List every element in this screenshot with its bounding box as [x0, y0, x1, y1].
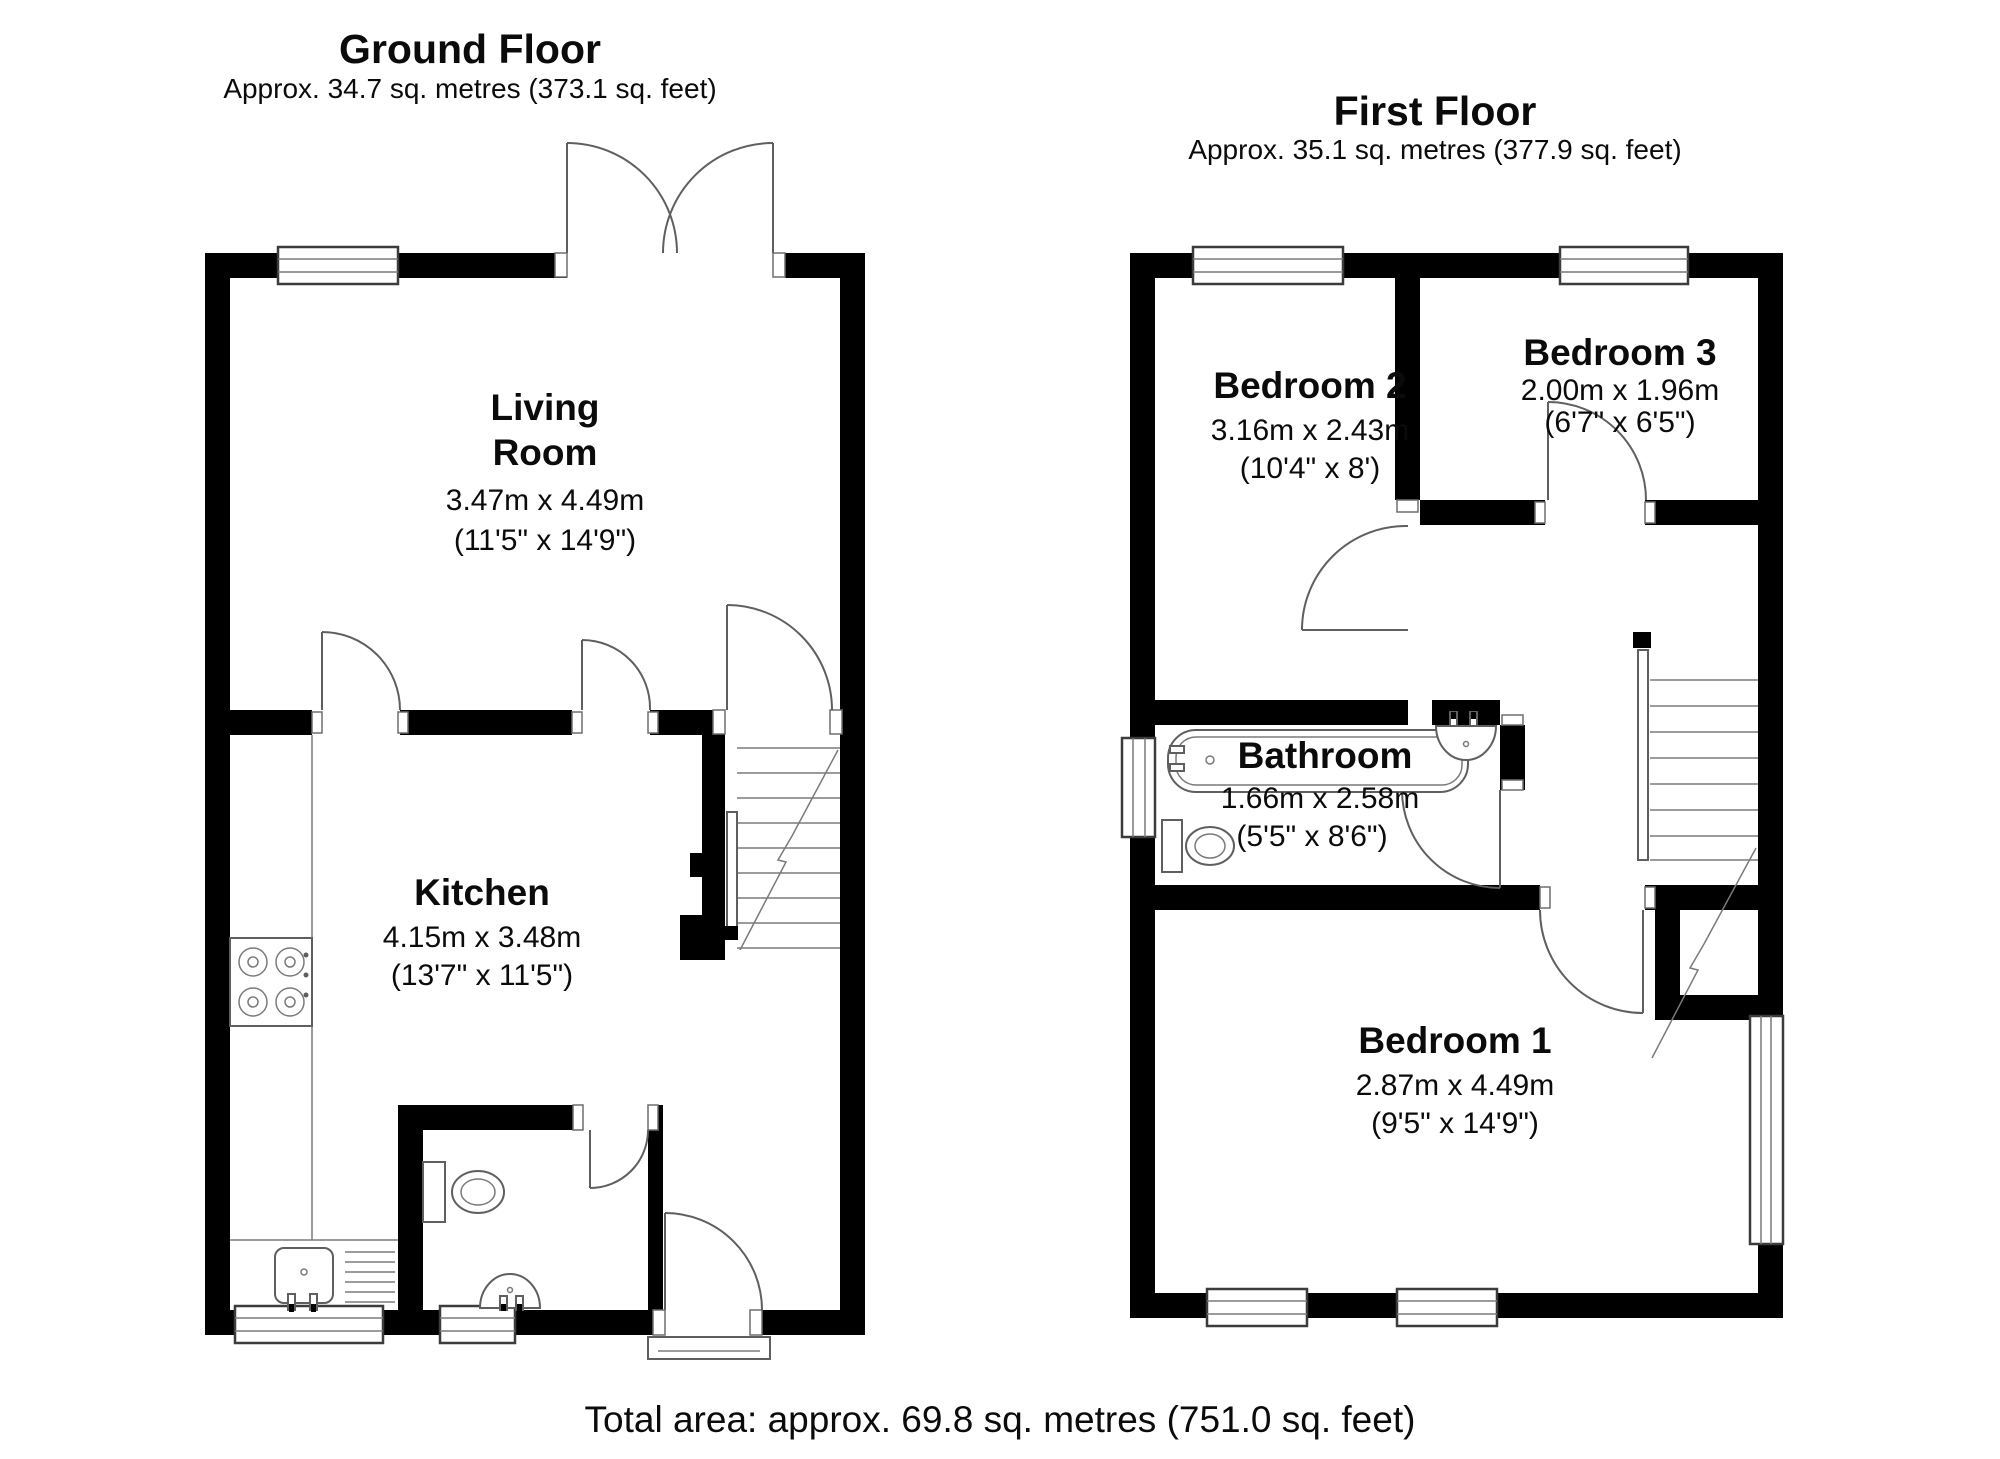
- front-door: [648, 1213, 770, 1359]
- bathroom-toilet: [1162, 820, 1234, 872]
- bedroom1-door: [1540, 887, 1655, 1013]
- kitchen-sink: [275, 1248, 395, 1312]
- first-floor-heading: First Floor Approx. 35.1 sq. metres (377…: [1188, 88, 1681, 165]
- front-door-step: [648, 1337, 770, 1359]
- living-room-door-left: [312, 632, 408, 733]
- wc-door: [573, 1105, 658, 1188]
- bedroom1-name: Bedroom 1: [1358, 1020, 1551, 1061]
- bedroom1-window-left: [1207, 1289, 1307, 1326]
- stairs-ground-direction-arrow: [740, 750, 838, 950]
- bathroom-window: [1122, 738, 1155, 837]
- wc-basin: [480, 1274, 540, 1311]
- kitchen-label: Kitchen 4.15m x 3.48m (13'7" x 11'5"): [383, 872, 581, 992]
- bedroom1-window-right: [1397, 1289, 1497, 1326]
- bathroom-metric: 1.66m x 2.58m: [1221, 782, 1419, 815]
- bedroom2-metric: 3.16m x 2.43m: [1211, 414, 1409, 447]
- living-room-name-line2: Room: [493, 432, 598, 473]
- bedroom2-imperial: (10'4" x 8'): [1240, 452, 1381, 485]
- bedroom1-metric: 2.87m x 4.49m: [1356, 1069, 1554, 1102]
- ground-floor-plan: Living Room 3.47m x 4.49m (11'5" x 14'9"…: [205, 143, 865, 1359]
- wc-toilet: [423, 1162, 504, 1222]
- bathroom-label: Bathroom 1.66m x 2.58m (5'5" x 8'6"): [1221, 735, 1419, 853]
- ground-window-top: [278, 247, 398, 284]
- bedroom1-side-window: [1750, 1016, 1783, 1244]
- total-area-text: Total area: approx. 69.8 sq. metres (751…: [585, 1399, 1416, 1440]
- living-room-imperial: (11'5" x 14'9"): [454, 524, 636, 557]
- floorplan-page: Ground Floor Approx. 34.7 sq. metres (37…: [0, 0, 2000, 1454]
- ground-window-kitchen: [235, 1306, 383, 1343]
- stairs-ground-banister: [727, 812, 737, 930]
- floorplan-drawing: Ground Floor Approx. 34.7 sq. metres (37…: [0, 0, 2000, 1454]
- french-doors: [555, 143, 785, 277]
- bedroom3-imperial: (6'7" x 6'5"): [1544, 406, 1695, 439]
- living-room-metric: 3.47m x 4.49m: [446, 484, 644, 517]
- kitchen-metric: 4.15m x 3.48m: [383, 921, 581, 954]
- kitchen-name: Kitchen: [414, 872, 550, 913]
- bedroom2-door: [1302, 500, 1418, 630]
- living-room-door-right: [572, 640, 658, 733]
- bedroom1-imperial: (9'5" x 14'9"): [1371, 1107, 1539, 1140]
- bedroom2-label: Bedroom 2 3.16m x 2.43m (10'4" x 8'): [1211, 365, 1409, 485]
- bedroom3-label: Bedroom 3 2.00m x 1.96m (6'7" x 6'5"): [1521, 332, 1719, 439]
- stairs-ground: [722, 748, 840, 950]
- first-floor-plan: Bedroom 2 3.16m x 2.43m (10'4" x 8') Bed…: [1122, 247, 1783, 1326]
- bedroom2-window: [1193, 247, 1343, 284]
- bedroom1-label: Bedroom 1 2.87m x 4.49m (9'5" x 14'9"): [1356, 1020, 1554, 1140]
- hall-door: [713, 605, 842, 734]
- bedroom3-name: Bedroom 3: [1523, 332, 1716, 373]
- bathroom-name: Bathroom: [1238, 735, 1413, 776]
- ground-window-wc: [440, 1306, 515, 1343]
- ground-floor-heading: Ground Floor Approx. 34.7 sq. metres (37…: [223, 26, 716, 104]
- stairs-first: [1633, 632, 1758, 1058]
- first-floor-area: Approx. 35.1 sq. metres (377.9 sq. feet): [1188, 134, 1681, 165]
- bedroom3-window: [1560, 247, 1688, 284]
- kitchen-imperial: (13'7" x 11'5"): [391, 959, 573, 992]
- bathroom-imperial: (5'5" x 8'6"): [1236, 820, 1387, 853]
- hob: [230, 938, 312, 1026]
- stairs-first-banister: [1638, 650, 1648, 860]
- living-room-label: Living Room 3.47m x 4.49m (11'5" x 14'9"…: [446, 387, 644, 557]
- first-floor-title: First Floor: [1334, 88, 1537, 134]
- bedroom3-metric: 2.00m x 1.96m: [1521, 374, 1719, 407]
- bedroom2-name: Bedroom 2: [1213, 365, 1406, 406]
- living-room-name-line1: Living: [491, 387, 600, 428]
- ground-floor-title: Ground Floor: [339, 26, 601, 72]
- ground-floor-area: Approx. 34.7 sq. metres (373.1 sq. feet): [223, 73, 716, 104]
